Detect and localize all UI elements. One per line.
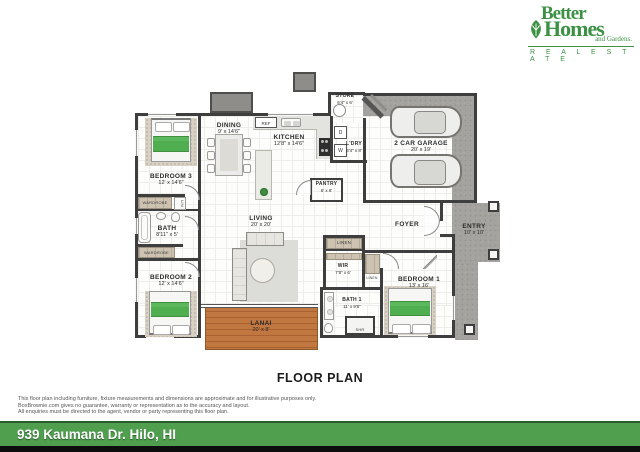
disclaimer-line-1: This floor plan including furniture, fix… xyxy=(18,396,316,403)
window-bedroom3-left xyxy=(135,130,138,156)
room-label-wir: WIR7'8" x 6' xyxy=(321,264,365,275)
room-label-lanai: LANAI20' x 8' xyxy=(221,320,301,334)
label-wardrobe-1: WARDROBE xyxy=(138,200,172,205)
room-label-ldry: L'DRY6'4" x 8' xyxy=(340,142,368,153)
room-label-garage: 2 CAR GARAGE20' x 19' xyxy=(371,140,471,154)
leaf-icon xyxy=(528,20,544,39)
coffee-table-icon xyxy=(250,258,275,283)
kitchen-island xyxy=(255,150,272,200)
exterior-pad xyxy=(293,72,316,92)
room-label-entry: ENTRY10' x 10' xyxy=(444,223,504,237)
room-label-kitchen: KITCHEN12'8" x 14'6" xyxy=(254,134,324,148)
wall-wir-bottom xyxy=(323,287,383,290)
plant-icon xyxy=(260,188,268,196)
bottom-black-bar xyxy=(0,446,640,452)
kitchen-sink-icon xyxy=(281,118,301,127)
car-icon xyxy=(390,106,462,138)
bath-sink-icon xyxy=(156,212,166,220)
wall-bed2-top xyxy=(135,258,198,261)
dining-chair-icon xyxy=(207,151,215,160)
sofa-left-icon xyxy=(232,248,247,301)
bedroom3-bed-icon xyxy=(151,118,191,162)
room-label-store: STORE6'4" x 6' xyxy=(315,94,375,105)
disclaimer-text: This floor plan including furniture, fix… xyxy=(18,396,316,416)
wall-garage-bottom xyxy=(363,200,477,203)
dining-table-icon xyxy=(215,134,243,176)
room-label-foyer: FOYER xyxy=(377,221,437,228)
dining-bumpout xyxy=(210,92,253,113)
wall-linen-divider xyxy=(323,249,365,251)
label-linen-2: LINEN xyxy=(363,276,381,280)
address-bar: 939 Kaumana Dr. Hilo, HI xyxy=(0,423,640,446)
dining-chair-icon xyxy=(243,138,251,147)
wall-bedroom1-top xyxy=(362,250,455,253)
window-bedroom1-bottom xyxy=(398,335,428,338)
wall-garage-top xyxy=(363,93,477,96)
dining-chair-icon xyxy=(243,164,251,173)
wall-bottom-right xyxy=(320,335,455,338)
window-bedroom3-top xyxy=(148,113,176,116)
wir-shelf xyxy=(326,253,362,260)
wall-bath-top xyxy=(135,209,198,211)
dining-chair-icon xyxy=(207,138,215,147)
room-label-pantry: PANTRY6' x 6' xyxy=(310,182,343,193)
bath-toilet-icon xyxy=(171,212,180,222)
logo-divider xyxy=(528,46,634,47)
wall-laundry-bottom xyxy=(330,160,367,163)
room-label-bath1: BATH 111' x 9'6" xyxy=(322,298,382,309)
label-linen-1: LINEN xyxy=(322,240,366,245)
porch-post-mid xyxy=(488,249,499,260)
room-label-dining: DINING9' x 14'6" xyxy=(199,122,259,136)
property-address: 939 Kaumana Dr. Hilo, HI xyxy=(0,423,640,446)
page-title: FLOOR PLAN xyxy=(0,371,640,385)
room-label-bedroom2: BEDROOM 212' x 14'6" xyxy=(131,274,211,288)
window-bedroom1-right xyxy=(452,296,455,320)
room-label-bedroom3: BEDROOM 312' x 14'6" xyxy=(131,173,211,187)
sofa-top-icon xyxy=(246,232,284,246)
dryer-icon: D xyxy=(334,126,347,139)
car-icon xyxy=(390,154,462,188)
label-lin: LIN xyxy=(175,198,185,209)
bhg-logo: Better Homes and Gardens. R E A L E S T … xyxy=(528,5,634,63)
wall-garage-right xyxy=(474,93,477,203)
bedroom2-bed-icon xyxy=(149,291,191,335)
dining-chair-icon xyxy=(207,164,215,173)
wall-kitchen-laundry xyxy=(330,116,333,162)
room-label-bath: BATH8'11" x 5' xyxy=(137,225,197,239)
bath1-toilet-icon xyxy=(324,323,333,333)
water-heater-icon xyxy=(333,104,346,117)
wall-lanai-left xyxy=(198,305,201,338)
wall-bath1-left xyxy=(320,287,323,338)
disclaimer-line-3: All enquiries must be directed to the ag… xyxy=(18,409,316,416)
bedroom1-bed-icon xyxy=(388,288,432,334)
porch-post-bottom xyxy=(464,324,475,335)
label-wardrobe-2: WARDROBE xyxy=(138,250,175,255)
linen2-shelf xyxy=(365,254,380,274)
label-shr: SHR xyxy=(345,327,375,332)
room-label-living: LIVING20' x 20' xyxy=(221,215,301,229)
floor-plan-page: Better Homes and Gardens. R E A L E S T … xyxy=(0,0,640,452)
bedroom1-corner-shelf xyxy=(423,255,437,269)
floor-plan-drawing: REF D W xyxy=(118,68,510,354)
shower-stall xyxy=(345,316,375,335)
sliding-door-lanai xyxy=(201,304,318,308)
dining-chair-icon xyxy=(243,151,251,160)
wall-foyer-right xyxy=(440,203,443,221)
logo-real-estate: R E A L E S T A T E xyxy=(530,49,634,63)
room-label-bedroom1: BEDROOM 113' x 16' xyxy=(379,276,459,290)
porch-post-top xyxy=(488,201,499,212)
